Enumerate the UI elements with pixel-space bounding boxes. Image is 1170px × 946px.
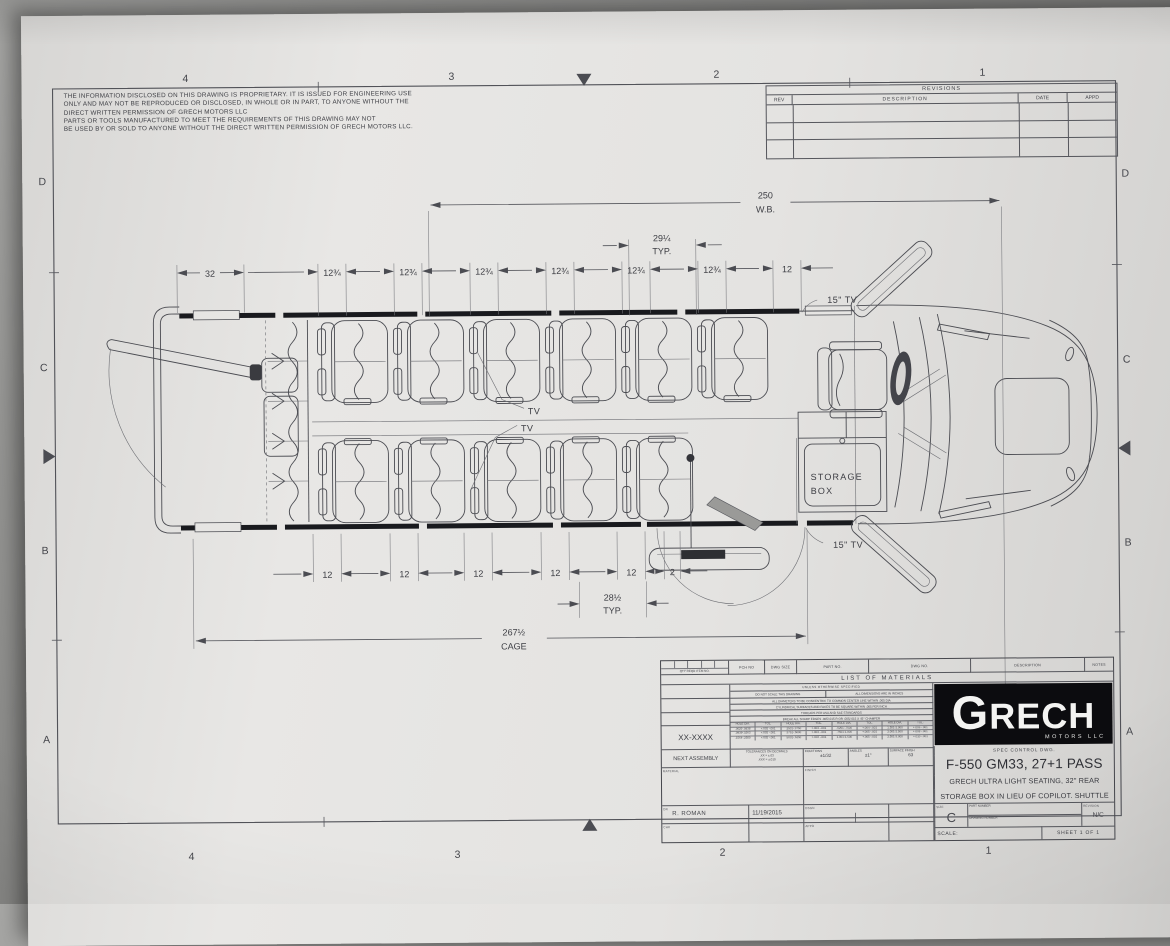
tb-part-number-label: PART NUMBER — [968, 803, 1081, 816]
tb-drawn-cell: DR R. ROMAN — [662, 806, 749, 825]
tb-material-cell: MATERIAL — [662, 767, 804, 806]
revisions-col-date: DATE — [1019, 93, 1068, 103]
proprietary-notice: THE INFORMATION DISCLOSED ON THIS DRAWIN… — [64, 90, 474, 135]
tb-drawing-title: F-550 GM33, 27+1 PASS — [934, 754, 1114, 775]
drawing-sheet-paper: 4 3 2 1 4 3 2 1 D C B A D C B A — [21, 7, 1170, 946]
tb-hole-tolerance-table: HOLE DIA.TOL.HOLE DIA.TOL.HOLE DIA.TOL.H… — [731, 721, 934, 750]
tb-part-no: PART NO. — [797, 660, 869, 675]
tb-dwg-size: DWG SIZE — [765, 660, 797, 674]
tb-dwg-no: DWG NO. — [869, 659, 971, 674]
grech-logo: GRECH MOTORS LLC — [934, 683, 1112, 745]
revisions-col-description: DESCRIPTION — [793, 93, 1019, 105]
tb-tolerances: TOLERANCES ON DECIMALS .XX = ±.03 .XXX =… — [731, 749, 804, 768]
tb-description-col: DESCRIPTION — [971, 658, 1085, 673]
tb-next-assembly: NEXT ASSEMBLY — [662, 750, 731, 769]
tb-finish-cell: FINISH — [804, 766, 934, 805]
tb-qty-label: QTY REQD — [680, 669, 696, 673]
sheet-content: 4 3 2 1 4 3 2 1 D C B A D C B A — [0, 0, 1170, 908]
tb-date-cell: 11/19/2015 — [749, 805, 804, 823]
revisions-col-appd: APPD — [1068, 93, 1117, 103]
tb-pch-no: PCH NO — [729, 660, 765, 674]
tb-revision-value: N/C — [1082, 812, 1114, 819]
tb-revision-cell: REVISION N/C — [1082, 803, 1114, 826]
tb-drawing-number-label: DRAWING NUMBER — [968, 815, 1081, 820]
annotation-layer: THE INFORMATION DISCLOSED ON THIS DRAWIN… — [0, 0, 1170, 908]
tb-item-qty-cell: QTY REQD ITEM NO. — [661, 661, 729, 676]
tb-tol-xxx: .XXX = ±.010 — [731, 757, 803, 762]
revisions-table: REVISIONS REV DESCRIPTION DATE APPD — [766, 83, 1119, 160]
tb-dsgn-cell: DSGN — [804, 804, 889, 823]
tb-chk-cell: CHK — [662, 824, 749, 843]
tb-surface-finish: SURFACE FINISH 63 — [889, 748, 934, 766]
tb-drawn-by: R. ROMAN — [672, 811, 706, 817]
tb-xx-number: XX-XXXX — [662, 726, 731, 751]
revisions-col-rev: REV — [767, 95, 793, 105]
title-block: QTY REQD ITEM NO. PCH NO DWG SIZE PART N… — [660, 657, 1115, 844]
tb-fractions: FRACTIONS ±1/32 — [804, 749, 849, 767]
tb-appd-cell: APPD — [804, 822, 889, 841]
tb-desc-line2: STORAGE BOX IN LIEU OF COPILOT. SHUTTLE … — [934, 788, 1114, 804]
tb-item-label: ITEM NO. — [696, 669, 709, 673]
tb-notes-col: NOTES — [1085, 658, 1113, 672]
grech-logo-subtext: MOTORS LLC — [1045, 734, 1106, 740]
photo-of-engineering-drawing: { "notice": { "l1": "THE INFORMATION DIS… — [0, 0, 1170, 904]
tb-date: 11/19/2015 — [752, 810, 782, 816]
tb-angles: ANGLES ±1° — [849, 748, 889, 766]
tb-size-cell: SIZE C — [934, 804, 968, 827]
tb-scale-cell: SCALE: — [934, 826, 1042, 840]
tb-size-value: C — [935, 810, 967, 825]
tb-desc-line1: GRECH ULTRA LIGHT SEATING, 32" REAR LUGG… — [934, 774, 1114, 789]
tb-numbers-cell: PART NUMBER DRAWING NUMBER — [968, 803, 1082, 827]
tb-sheet-cell: SHEET 1 OF 1 — [1042, 826, 1114, 840]
